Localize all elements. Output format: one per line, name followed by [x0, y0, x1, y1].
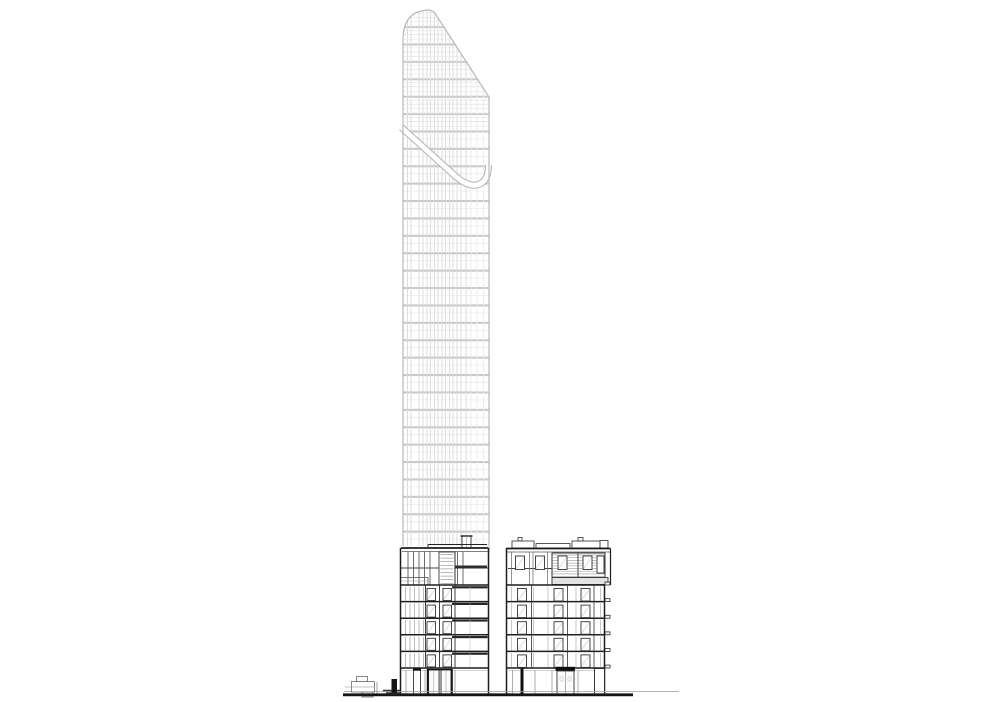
elevation-drawing [0, 0, 1000, 702]
stair-shaft [439, 552, 455, 585]
entrance-door [414, 670, 421, 695]
dark-post [521, 669, 524, 696]
left-building [400, 536, 489, 695]
tower-facade [403, 10, 489, 557]
utility-box [357, 677, 368, 682]
right-building [506, 538, 616, 696]
elevation-page [0, 0, 1000, 702]
